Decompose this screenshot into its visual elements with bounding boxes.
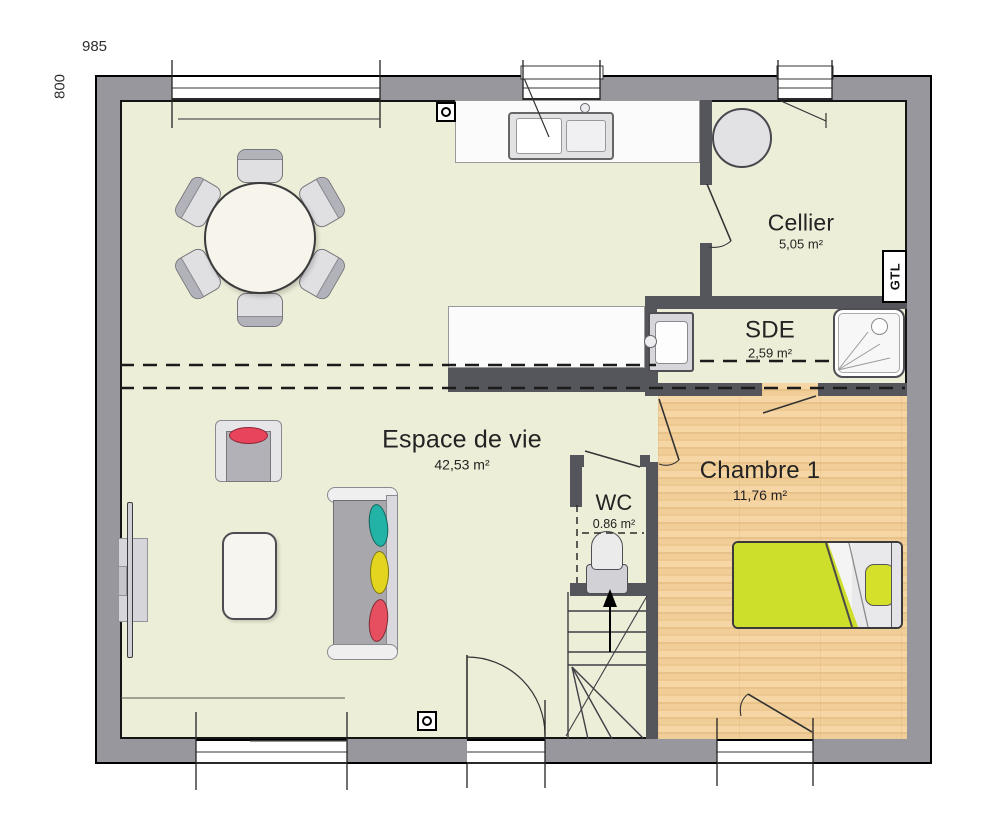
sofa-pillow-yellow <box>370 551 389 594</box>
shower-tray <box>833 308 905 378</box>
bed-headboard <box>891 543 901 627</box>
room-area: 0.86 m² <box>593 517 635 531</box>
dimension-height-label: 800 <box>52 64 69 110</box>
kitchen-sink-basin-right <box>566 120 606 152</box>
half-wall-kitchen-island <box>448 368 658 392</box>
entrance-door-opening <box>467 739 545 764</box>
sde-washbasin-bowl <box>655 321 688 364</box>
coffee-table <box>222 532 277 620</box>
window-kitchen <box>523 75 600 100</box>
label-sde: SDE 2,59 m² <box>745 317 795 362</box>
bed-cover <box>734 543 858 627</box>
sde-faucet-icon <box>644 335 657 348</box>
chambre-top-door-opening <box>762 383 818 396</box>
island-counter <box>448 306 645 368</box>
armchair-cushion <box>229 427 268 444</box>
window-living <box>196 739 347 764</box>
shower-drain-icon <box>871 318 888 335</box>
dining-chair <box>237 149 283 183</box>
label-wc: WC 0.86 m² <box>593 490 635 532</box>
sofa <box>327 487 398 660</box>
wall-wc-left <box>570 455 582 507</box>
window-dining <box>172 75 380 100</box>
structural-post-icon <box>436 102 456 122</box>
water-heater-icon <box>712 108 772 168</box>
room-area: 2,59 m² <box>745 346 795 361</box>
window-cellier <box>778 75 832 100</box>
kitchen-sink-basin-left <box>516 118 562 154</box>
toilet-bowl <box>591 531 623 570</box>
dining-chair <box>237 293 283 327</box>
room-name: Cellier <box>768 209 835 235</box>
structural-post-icon <box>417 711 437 731</box>
label-espace-de-vie: Espace de vie 42,53 m² <box>382 426 542 473</box>
gtl-box: GTL <box>882 250 907 303</box>
double-bed <box>732 541 903 629</box>
room-name: Espace de vie <box>382 426 542 455</box>
wall-chambre-left <box>646 462 658 739</box>
room-name: WC <box>593 490 635 515</box>
room-area: 11,76 m² <box>700 487 821 503</box>
label-cellier: Cellier 5,05 m² <box>768 209 835 252</box>
floor-plan: 985 800 <box>0 0 1000 824</box>
kitchen-faucet-icon <box>580 103 590 113</box>
room-area: 42,53 m² <box>382 456 542 472</box>
sofa-armrest-bottom <box>327 644 398 660</box>
room-area: 5,05 m² <box>768 238 835 253</box>
round-dining-table <box>204 182 316 294</box>
wall-kitchen-cellier-upper <box>700 100 712 185</box>
armchair <box>215 420 282 482</box>
wall-wc-top-right <box>640 455 650 467</box>
tv-screen <box>127 502 133 658</box>
dimension-width-label: 985 <box>82 38 107 55</box>
room-name: SDE <box>745 317 795 345</box>
french-door-chambre <box>717 739 813 764</box>
gtl-label: GTL <box>887 263 902 291</box>
label-chambre-1: Chambre 1 11,76 m² <box>700 457 821 503</box>
tv-mount <box>118 566 127 596</box>
room-name: Chambre 1 <box>700 457 821 485</box>
